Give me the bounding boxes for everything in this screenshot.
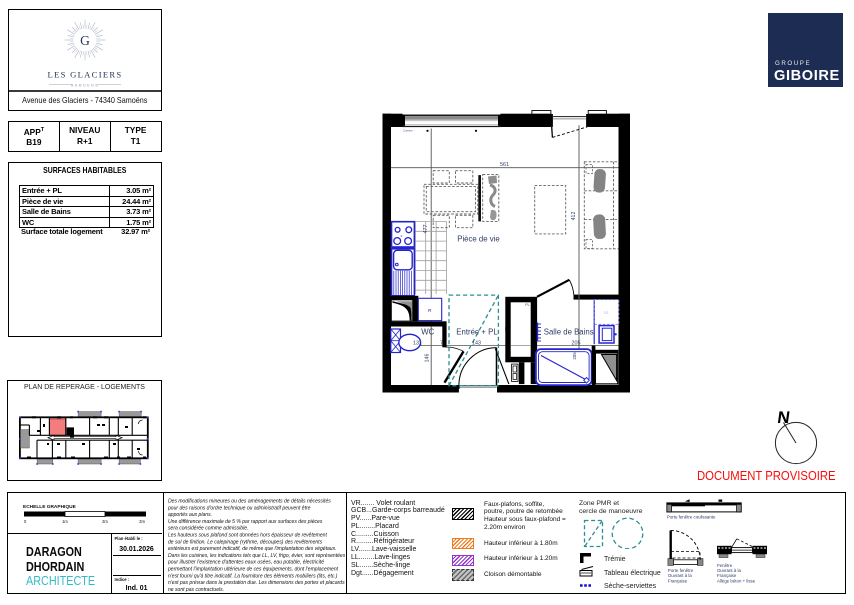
svg-text:LL: LL <box>604 311 608 315</box>
svg-text:c: c <box>401 234 403 238</box>
svg-text:412: 412 <box>571 212 577 221</box>
svg-text:205: 205 <box>572 340 581 346</box>
svg-text:131: 131 <box>413 340 422 346</box>
svg-text:0: 0 <box>24 519 27 524</box>
svg-text:PL: PL <box>525 303 529 307</box>
svg-text:205: 205 <box>572 352 577 360</box>
svg-text:Entrée + PL: Entrée + PL <box>456 327 498 336</box>
svg-text:2m: 2m <box>102 519 108 524</box>
svg-text:LES GLACIERS: LES GLACIERS <box>47 69 122 79</box>
svg-text:1m: 1m <box>62 519 68 524</box>
svg-text:146: 146 <box>425 354 431 363</box>
svg-text:477: 477 <box>423 225 429 234</box>
svg-text:R: R <box>428 308 432 314</box>
svg-text:WC: WC <box>421 327 434 336</box>
svg-text:143: 143 <box>472 340 481 346</box>
svg-text:Porte fenêtre coulissante: Porte fenêtre coulissante <box>667 515 716 520</box>
svg-text:Pièce de vie: Pièce de vie <box>457 234 499 243</box>
svg-text:Salle de Bains: Salle de Bains <box>544 327 594 336</box>
svg-text:561: 561 <box>500 162 509 168</box>
svg-text:Française: Française <box>668 578 688 583</box>
svg-text:SAMOENS: SAMOENS <box>71 83 99 87</box>
svg-text:Allège béton + lisse: Allège béton + lisse <box>717 578 756 583</box>
svg-text:Cuisine: Cuisine <box>403 129 413 133</box>
svg-text:G: G <box>80 33 90 48</box>
svg-text:3m: 3m <box>139 519 145 524</box>
svg-text:7: 7 <box>440 340 443 346</box>
